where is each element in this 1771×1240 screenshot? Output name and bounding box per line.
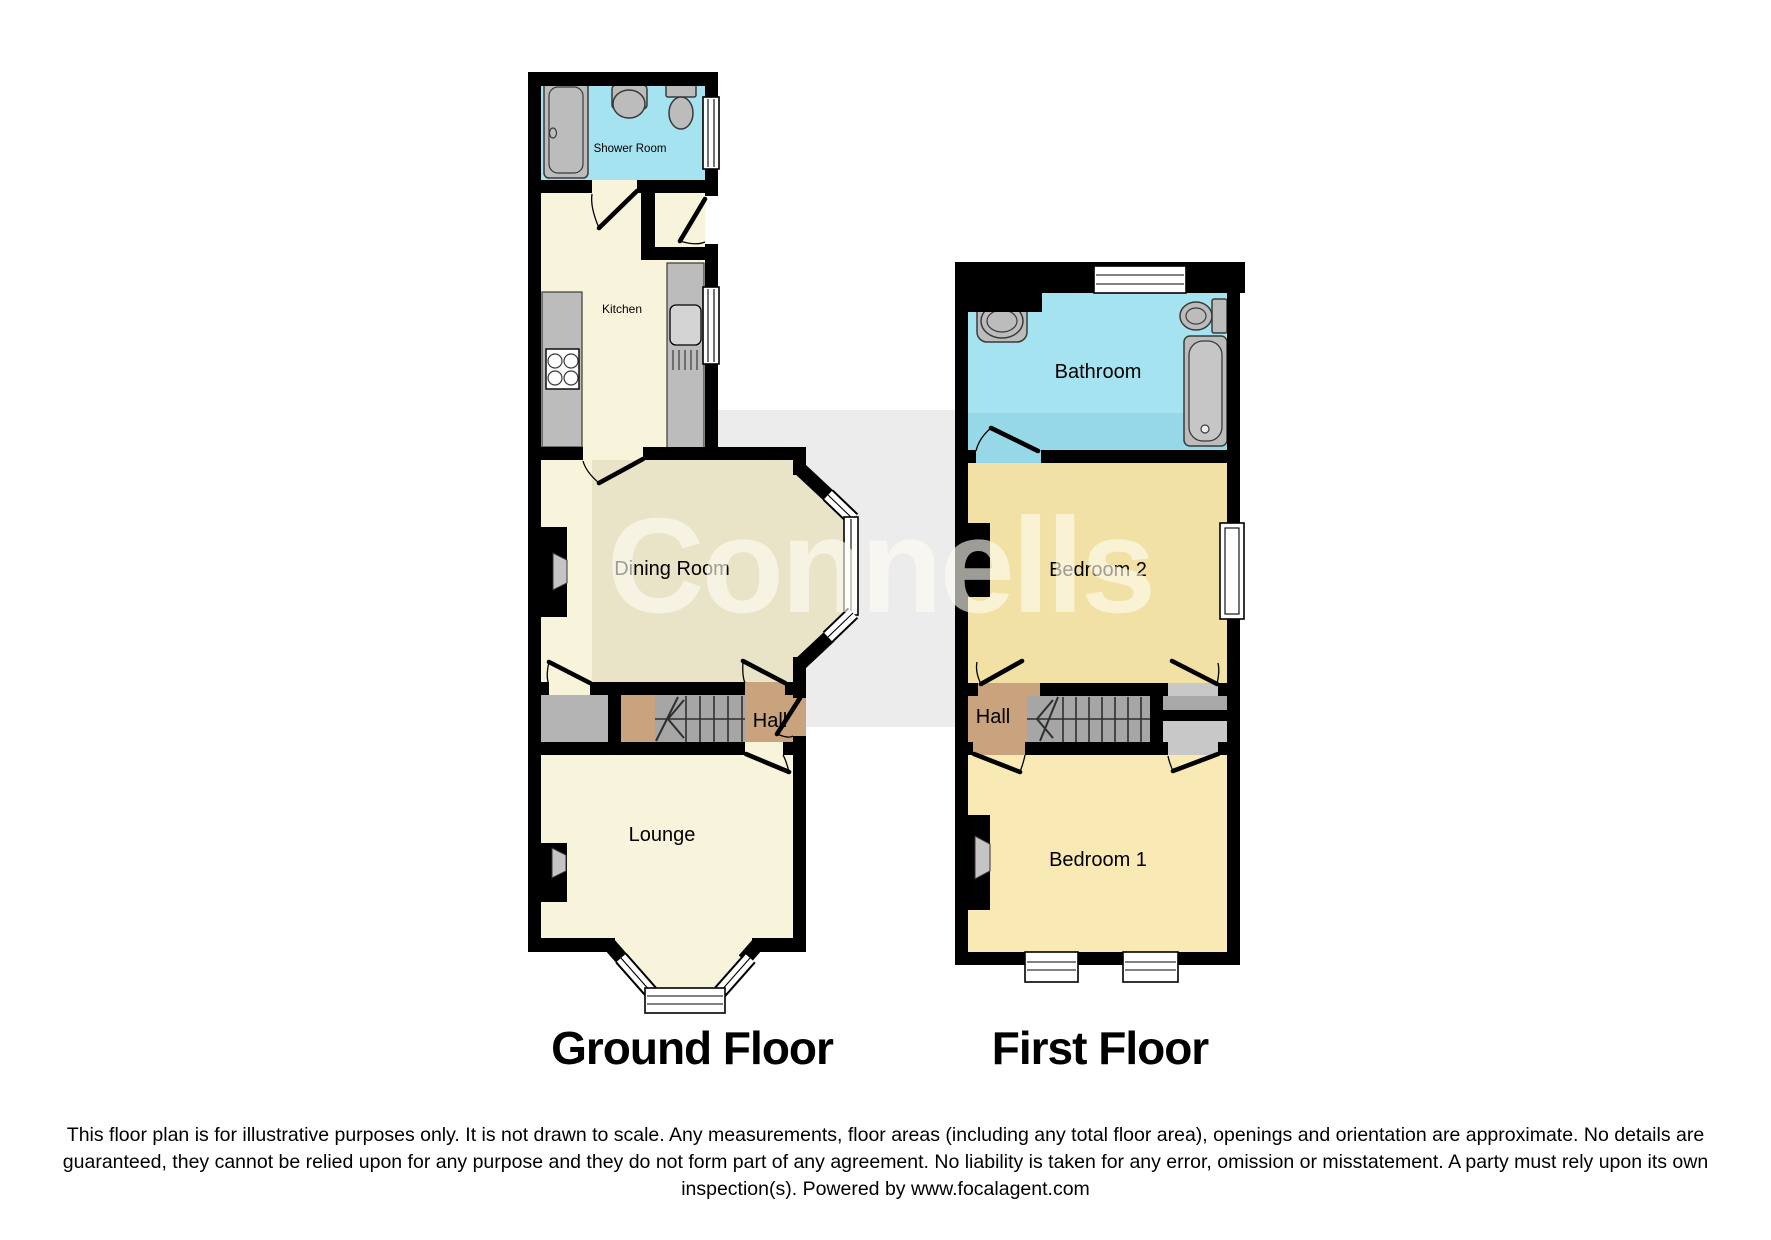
ground-floor-title: Ground Floor — [551, 1022, 834, 1074]
window — [703, 287, 719, 364]
label-shower-room: Shower Room — [594, 143, 667, 155]
basin-icon — [613, 90, 645, 118]
window — [703, 97, 719, 169]
window — [1123, 952, 1178, 982]
label-hall-ground: Hall — [753, 710, 787, 732]
porch-area — [541, 695, 608, 742]
kitchen-sink-icon — [670, 305, 701, 345]
toilet-icon — [1180, 302, 1212, 330]
toilet-cistern-icon — [1212, 299, 1227, 333]
floorplan-page: Shower Room Kitchen Dining Room Hall Lou… — [0, 0, 1771, 1240]
fireplace-icon — [975, 836, 990, 879]
label-bedroom1: Bedroom 1 — [1049, 849, 1147, 871]
bath-drain-icon — [1201, 425, 1209, 433]
floorplan-canvas: Shower Room Kitchen Dining Room Hall Lou… — [0, 0, 1771, 1240]
room-lounge — [541, 742, 793, 952]
landing-upper — [1163, 696, 1227, 710]
window — [645, 988, 725, 1013]
fireplace-icon — [553, 553, 567, 590]
window — [1094, 266, 1186, 293]
label-hall-first: Hall — [976, 706, 1010, 728]
side-door-opening — [705, 196, 718, 244]
label-kitchen: Kitchen — [602, 302, 642, 316]
landing-lower — [1163, 721, 1227, 742]
watermark-text: Connells — [607, 490, 1153, 641]
disclaimer-text: This floor plan is for illustrative purp… — [30, 1122, 1741, 1203]
label-bathroom: Bathroom — [1055, 361, 1142, 383]
toilet-icon — [669, 97, 693, 129]
first-floor-title: First Floor — [992, 1022, 1210, 1074]
label-lounge: Lounge — [629, 824, 696, 846]
window — [1025, 952, 1078, 982]
window — [1220, 523, 1244, 619]
